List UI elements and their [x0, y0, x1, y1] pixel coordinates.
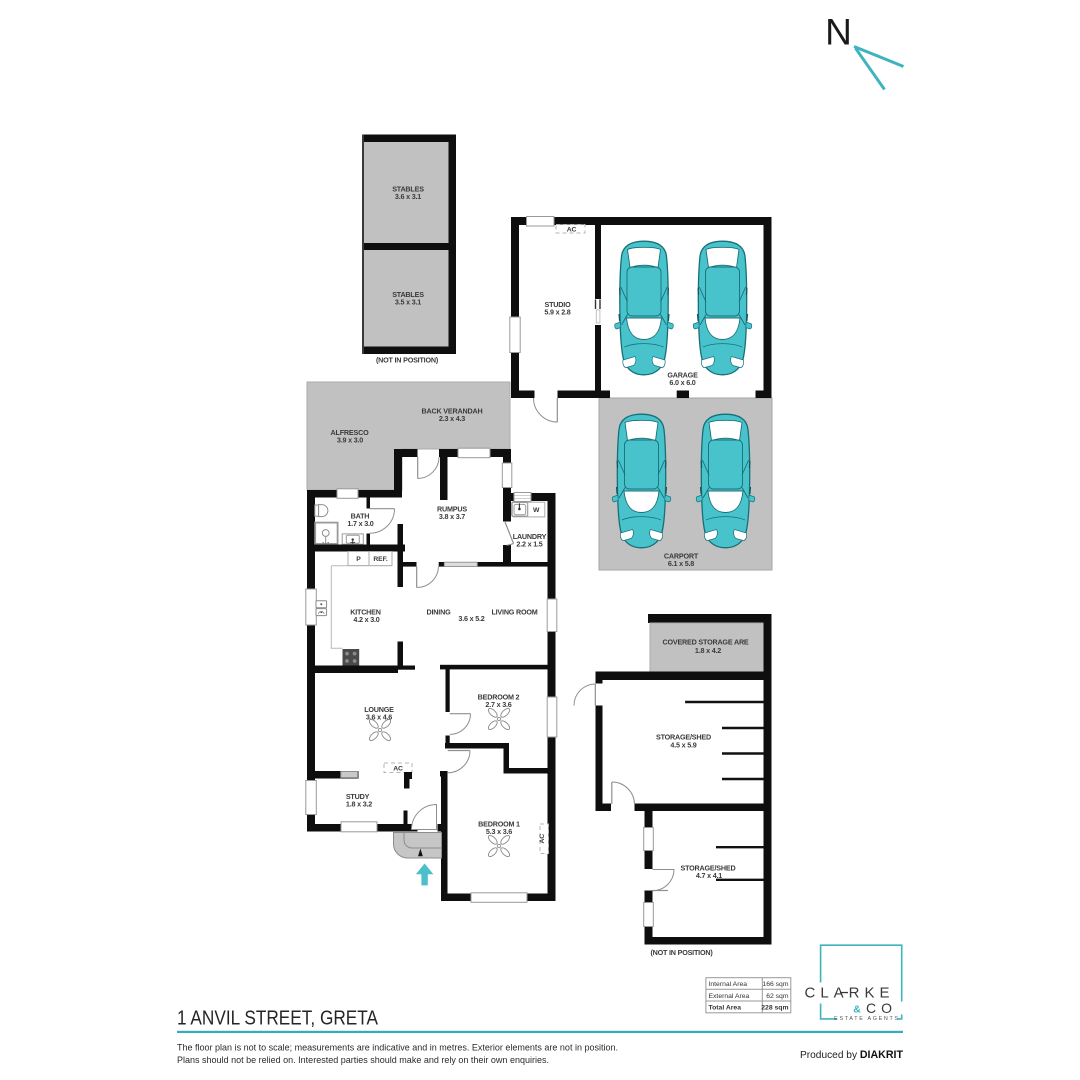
svg-text:Plans should not be relied on.: Plans should not be relied on. Intereste…: [177, 1055, 549, 1065]
svg-text:228 sqm: 228 sqm: [761, 1005, 788, 1012]
svg-text:External Area: External Area: [709, 993, 750, 1000]
svg-text:Total Area: Total Area: [709, 1005, 742, 1012]
svg-text:Internal Area: Internal Area: [709, 981, 748, 988]
svg-text:W: W: [533, 507, 540, 514]
svg-text:166 sqm: 166 sqm: [762, 981, 788, 988]
svg-text:6.0 x 6.0: 6.0 x 6.0: [669, 378, 695, 387]
svg-text:The floor plan is not to scale: The floor plan is not to scale; measurem…: [177, 1043, 618, 1053]
svg-text:5.3 x 3.6: 5.3 x 3.6: [486, 827, 512, 836]
svg-text:DINING: DINING: [427, 608, 452, 617]
svg-text:4.2 x 3.0: 4.2 x 3.0: [353, 615, 379, 624]
svg-text:AC: AC: [539, 834, 546, 844]
svg-text:3.8 x 3.7: 3.8 x 3.7: [439, 512, 465, 521]
svg-text:ESTATE AGENTS: ESTATE AGENTS: [834, 1016, 900, 1022]
svg-text:1.8 x 3.2: 1.8 x 3.2: [346, 800, 372, 809]
svg-text:CLARKE: CLARKE: [804, 984, 894, 1001]
svg-text:N: N: [825, 12, 852, 53]
svg-text:2.2 x 1.5: 2.2 x 1.5: [516, 540, 542, 549]
svg-text:3.6 x 3.1: 3.6 x 3.1: [395, 192, 421, 201]
svg-text:LIVING ROOM: LIVING ROOM: [491, 608, 537, 617]
svg-text:62 sqm: 62 sqm: [766, 993, 789, 1000]
svg-text:1.8 x 4.2: 1.8 x 4.2: [695, 646, 721, 655]
svg-text:AC: AC: [567, 226, 577, 233]
svg-text:3.5 x 3.1: 3.5 x 3.1: [395, 298, 421, 307]
svg-text:1 ANVIL STREET, GRETA: 1 ANVIL STREET, GRETA: [177, 1007, 378, 1030]
svg-text:4.7 x 4.1: 4.7 x 4.1: [696, 871, 722, 880]
svg-text:2.3 x 4.3: 2.3 x 4.3: [439, 414, 465, 423]
svg-text:P: P: [356, 556, 361, 563]
svg-text:3.6 x 5.2: 3.6 x 5.2: [458, 614, 484, 623]
svg-text:3.9 x 3.0: 3.9 x 3.0: [337, 436, 363, 445]
svg-text:4.5 x 5.9: 4.5 x 5.9: [670, 741, 696, 750]
svg-text:AC: AC: [393, 766, 403, 773]
svg-text:6.1 x 5.8: 6.1 x 5.8: [668, 559, 694, 568]
svg-text:5.9 x 2.8: 5.9 x 2.8: [544, 308, 570, 317]
svg-text:CO: CO: [866, 1000, 897, 1016]
svg-text:Produced by DIAKRIT: Produced by DIAKRIT: [800, 1049, 903, 1061]
svg-text:2.7 x 3.6: 2.7 x 3.6: [485, 700, 511, 709]
svg-text:1.7 x 3.0: 1.7 x 3.0: [347, 519, 373, 528]
svg-text:(NOT IN POSITION): (NOT IN POSITION): [376, 356, 439, 365]
svg-text:REF.: REF.: [373, 556, 388, 563]
svg-text:&: &: [853, 1004, 861, 1016]
svg-text:(NOT IN POSITION): (NOT IN POSITION): [650, 948, 713, 957]
